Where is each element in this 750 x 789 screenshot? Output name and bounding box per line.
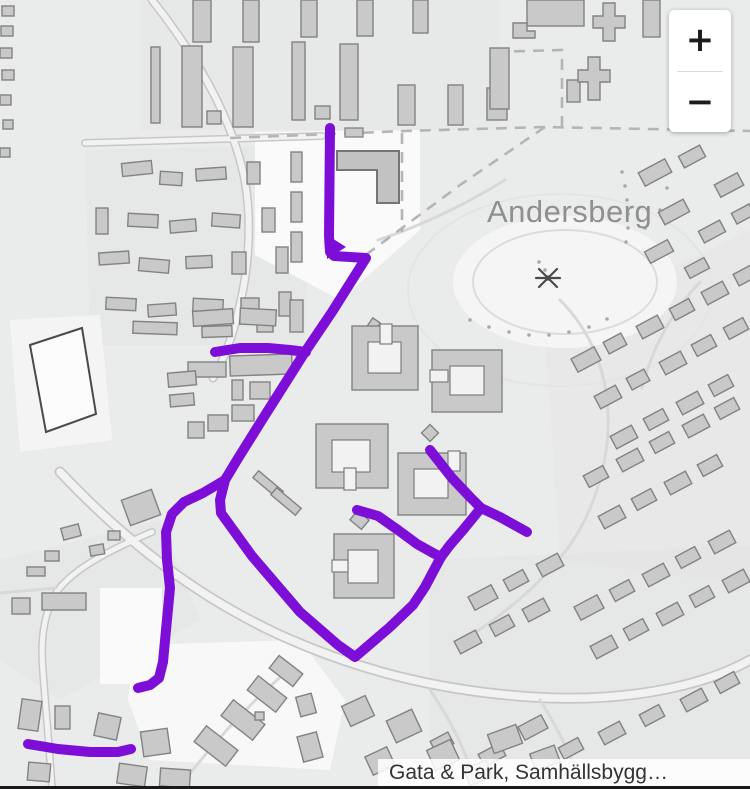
zoom-in-button[interactable]: + [669,10,731,71]
map-attribution: Gata & Park, Samhällsbygg… [378,759,750,786]
map-viewport[interactable]: Andersberg + − Gata & Park, Samhällsbygg… [0,0,750,789]
zoom-control: + − [669,10,731,132]
place-label-andersberg: Andersberg [487,194,652,230]
zoom-out-button[interactable]: − [669,72,731,133]
map-canvas[interactable] [0,0,750,789]
